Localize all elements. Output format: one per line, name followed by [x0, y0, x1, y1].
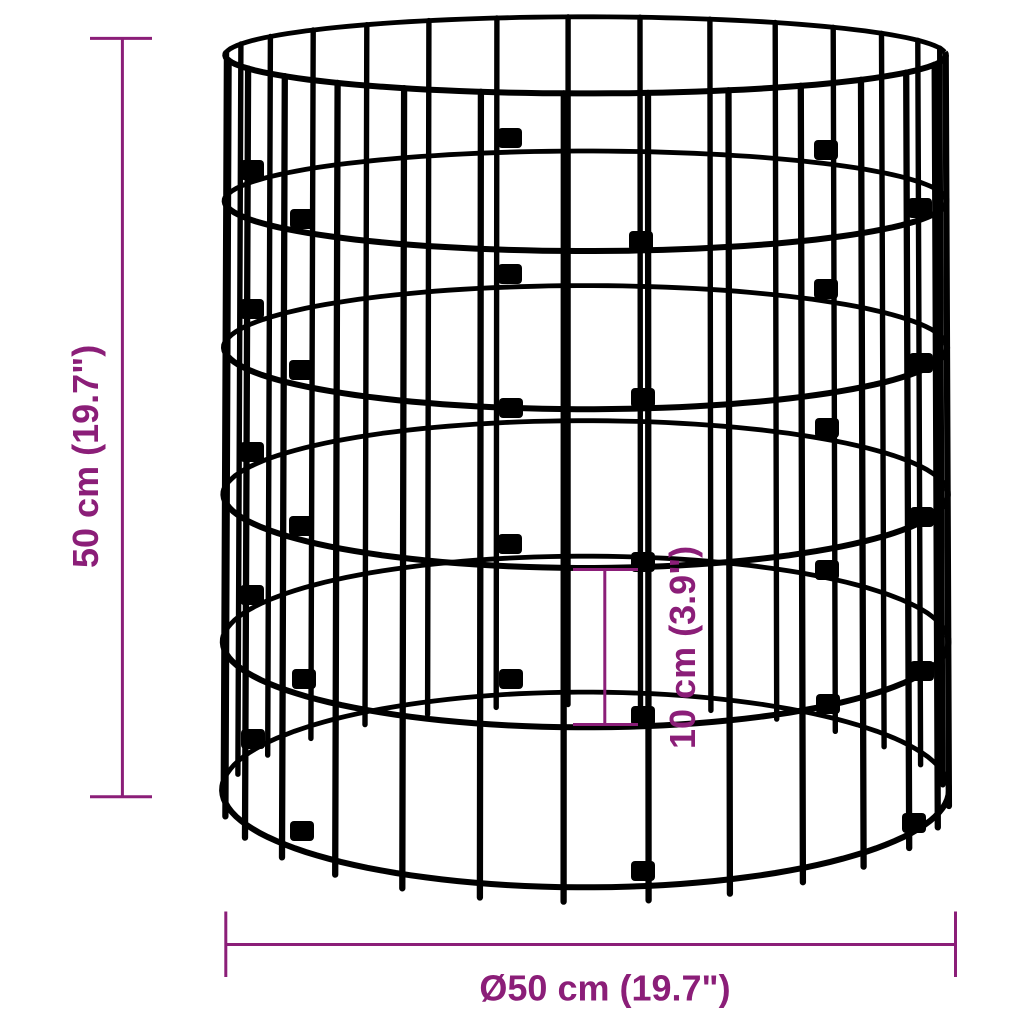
svg-text:50 cm (19.7"): 50 cm (19.7") [65, 345, 106, 568]
svg-text:10 cm (3.9"): 10 cm (3.9") [662, 546, 703, 749]
svg-text:Ø50 cm (19.7"): Ø50 cm (19.7") [479, 968, 730, 1009]
